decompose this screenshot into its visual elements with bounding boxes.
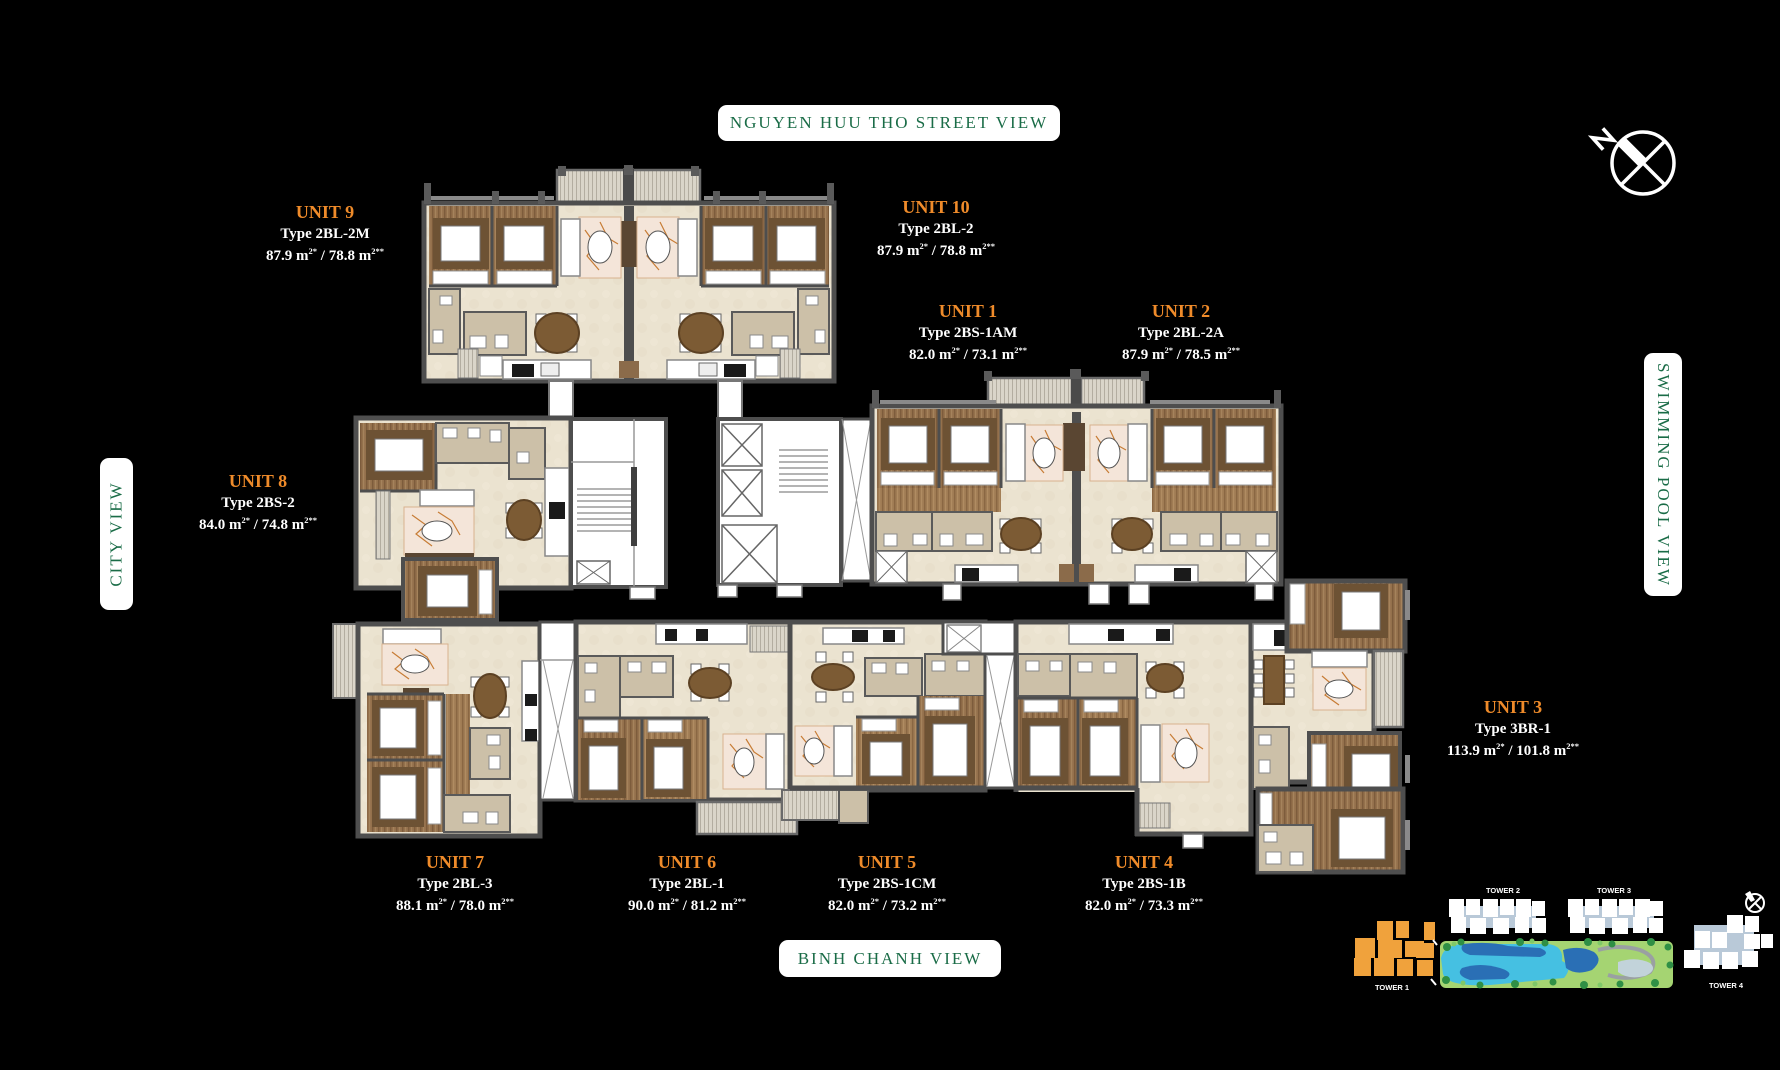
svg-text:TOWER 2: TOWER 2 (1486, 886, 1520, 895)
svg-text:TOWER 3: TOWER 3 (1597, 886, 1631, 895)
svg-text:TOWER 4: TOWER 4 (1709, 981, 1744, 990)
svg-text:TOWER 1: TOWER 1 (1375, 983, 1409, 992)
